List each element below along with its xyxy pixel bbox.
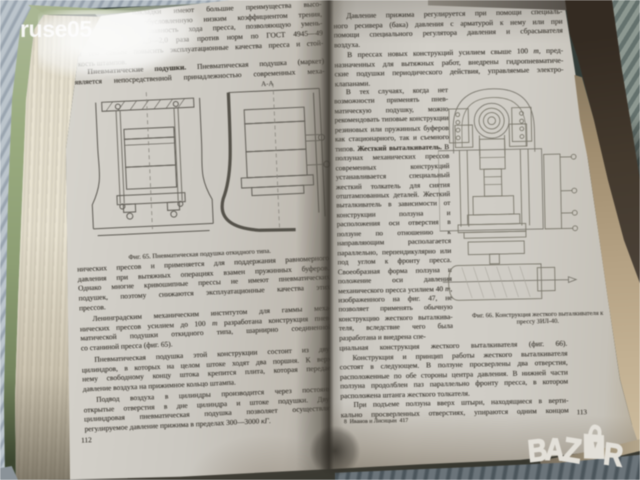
svg-text:R: R <box>602 437 625 474</box>
svg-text:А-А: А-А <box>261 80 274 89</box>
svg-text:Z: Z <box>561 430 583 471</box>
